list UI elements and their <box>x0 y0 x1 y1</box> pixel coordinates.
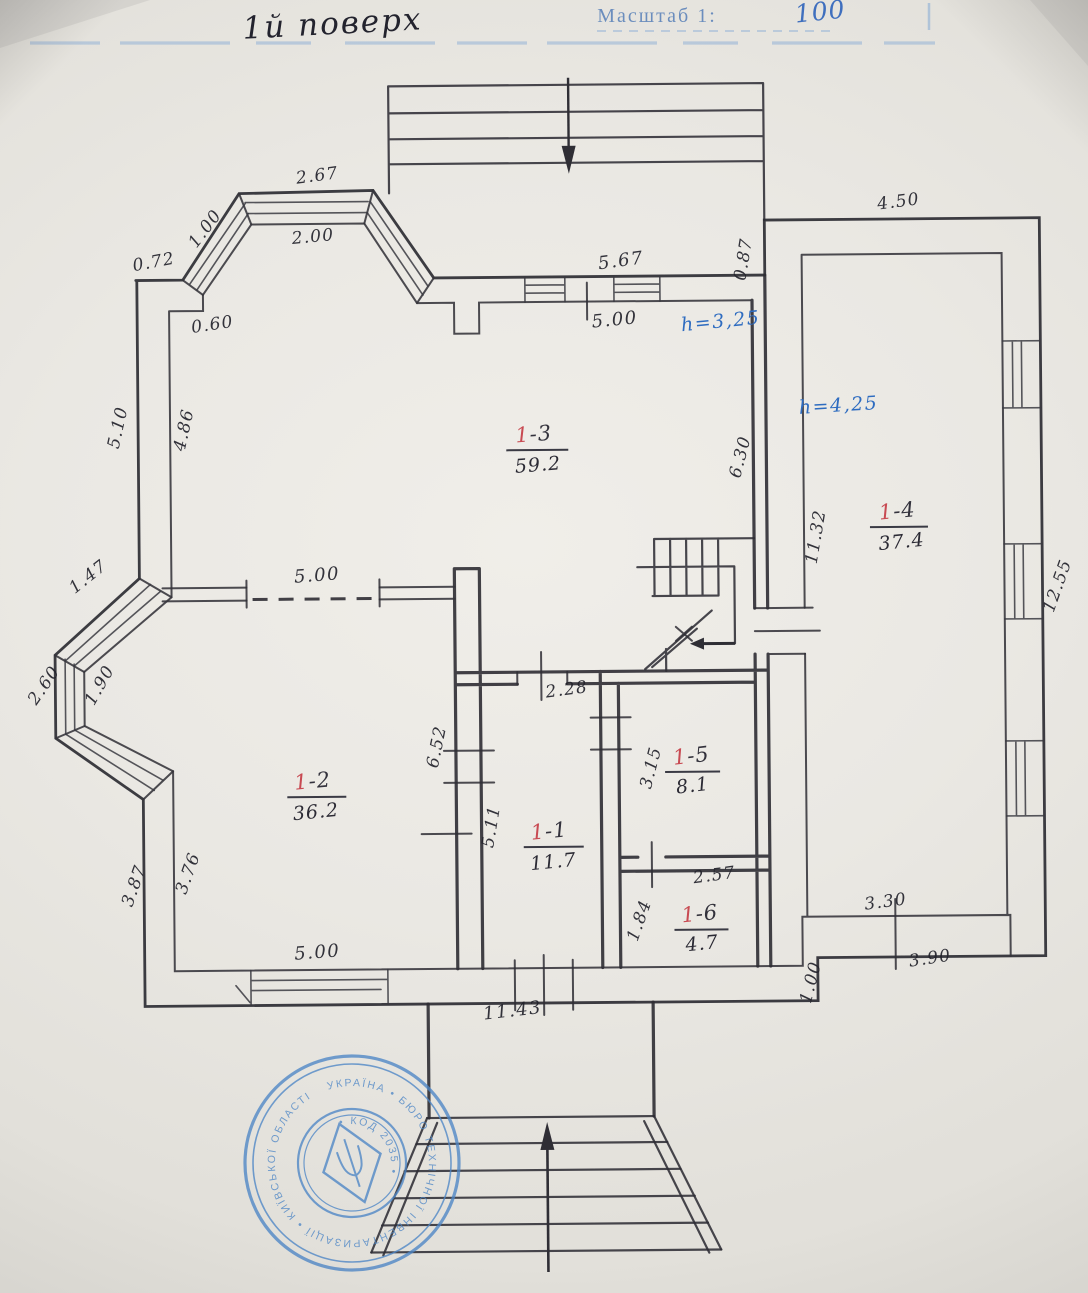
scan-corner-shadows <box>0 0 1088 66</box>
top-porch-stairs <box>388 76 764 223</box>
height-note-annex: h=4,25 <box>798 392 879 419</box>
room-1-2-suffix: -2 <box>307 767 332 793</box>
interior-staircase <box>637 538 755 671</box>
room-1-1-area: 11.7 <box>529 849 577 875</box>
floor-plan-canvas: 1й поверх Масштаб 1: 100 <box>0 0 1088 1293</box>
stamp-trident-icon <box>334 1136 370 1190</box>
room-labels: 1-3 59.2 1-2 36.2 1-1 11.7 1-5 8.1 1-6 <box>284 417 932 959</box>
dim-room1-top-opening: 2.28 <box>543 677 589 703</box>
stair-arrow-head <box>690 638 704 650</box>
room-1-1-suffix: -1 <box>544 817 569 843</box>
door-jambs-and-ticks <box>244 280 896 1018</box>
room-1-4-area: 37.4 <box>877 529 925 555</box>
dim-top-wall-outer: 5.67 <box>597 247 645 274</box>
up-arrow-head <box>540 1122 554 1150</box>
dim-bay-top-inner: 2.00 <box>290 225 335 249</box>
corner-shadow-topright <box>1030 0 1088 66</box>
dim-left-wall-inner: 4.86 <box>170 407 199 454</box>
dim-bay-top-outer: 2.67 <box>294 163 340 189</box>
dim-bay-left-window: 1.00 <box>184 206 226 252</box>
dim-bottom-window: 5.00 <box>293 940 341 965</box>
window-left-bay-bottom-diagonal <box>66 729 164 791</box>
room-label-1-1: 1-1 11.7 <box>523 817 583 875</box>
room-1-5-area: 8.1 <box>675 773 710 799</box>
dim-room2-left-outer: 3.87 <box>118 862 151 909</box>
dim-inner-step: 0.60 <box>190 312 235 338</box>
dim-left-bay-outer: 2.60 <box>23 662 64 709</box>
window-left-bay-side <box>65 659 75 734</box>
window-annex-right-3 <box>1006 741 1045 816</box>
dashed-opening <box>253 599 372 600</box>
room-label-1-2: 1-2 36.2 <box>287 767 346 825</box>
room-1-3-suffix: -3 <box>529 421 553 447</box>
dim-annex-top: 4.50 <box>875 189 921 215</box>
dim-room6-left: 1.84 <box>623 897 656 944</box>
room-1-4-suffix: -4 <box>892 497 917 523</box>
svg-text:1-3: 1-3 <box>514 421 553 448</box>
down-arrow-head <box>562 146 576 174</box>
dim-bottom-overall: 11.43 <box>482 997 543 1025</box>
room-label-1-5: 1-5 8.1 <box>665 742 720 799</box>
window-top-bay <box>245 202 368 214</box>
room-1-3-area: 59.2 <box>514 452 562 478</box>
scanned-floor-plan-page: 1й поверх Масштаб 1: 100 <box>0 0 1088 1293</box>
room-1-1-underline <box>524 847 584 848</box>
window-top-wall-1 <box>525 277 565 302</box>
svg-text:1-1: 1-1 <box>530 817 569 844</box>
room-1-6-suffix: -6 <box>695 900 720 926</box>
floor-title: 1й поверх <box>242 1 424 46</box>
window-annex-right-2 <box>1004 544 1043 619</box>
room-label-1-4: 1-4 37.4 <box>870 497 928 555</box>
dim-annex-left-wall: 11.32 <box>802 508 831 565</box>
height-annotations: h=3,25 h=4,25 <box>680 306 879 420</box>
dim-left-bay-top-window: 1.47 <box>65 556 111 598</box>
dim-annex-bottom-outer: 3.90 <box>907 946 952 972</box>
svg-text:1-4: 1-4 <box>878 497 917 524</box>
dim-hall-right-wall: 6.30 <box>726 434 756 480</box>
dim-top-left-step: 0.72 <box>131 249 177 276</box>
dim-room-opening: 5.00 <box>293 563 341 588</box>
floor-plan-drawing: 0.72 1.00 2.67 2.00 0.60 5.10 4.86 5.67 … <box>18 73 1083 1276</box>
title-block: 1й поверх Масштаб 1: 100 <box>30 0 935 47</box>
dimension-labels: 0.72 1.00 2.67 2.00 0.60 5.10 4.86 5.67 … <box>19 157 1081 1029</box>
dim-room2-left-inner: 3.76 <box>172 850 205 897</box>
dim-top-wall-inner: 5.00 <box>591 307 639 332</box>
room-label-1-3: 1-3 59.2 <box>506 421 568 478</box>
bay-corner-piers <box>51 190 438 800</box>
room-1-3-underline <box>506 450 568 451</box>
scale-value: 100 <box>793 0 846 29</box>
room-label-1-6: 1-6 4.7 <box>674 900 728 957</box>
room-1-2-area: 36.2 <box>292 799 340 825</box>
dim-annex-right-wall: 12.55 <box>1039 557 1076 615</box>
height-note-main: h=3,25 <box>680 307 761 337</box>
dim-room2-right-wall: 6.52 <box>423 724 451 770</box>
scale-label: Масштаб 1: <box>597 5 717 27</box>
room-1-4-underline <box>870 527 928 528</box>
room-1-2-underline <box>287 797 346 798</box>
interior-walls <box>160 274 897 1120</box>
dim-annex-bottom-inner: 3.30 <box>863 889 908 914</box>
window-bottom-wall <box>236 969 388 1005</box>
dim-room6-top: 2.57 <box>691 863 737 889</box>
room-1-5-suffix: -5 <box>686 742 711 768</box>
svg-text:1-5: 1-5 <box>672 742 711 770</box>
dim-room5-left-wall: 3.15 <box>636 745 666 791</box>
corner-shadow-topleft <box>0 0 150 48</box>
svg-text:1-2: 1-2 <box>293 767 332 794</box>
down-arrow-shaft <box>568 78 569 150</box>
official-stamp: УКРАЇНА • БЮРО ТЕХНІЧНОЇ ІНВЕНТАРИЗАЦІЇ … <box>217 1028 487 1293</box>
room-1-6-area: 4.7 <box>683 931 719 956</box>
window-top-bay-right-diagonal <box>367 201 428 296</box>
dim-left-wall-outer: 5.10 <box>104 405 133 451</box>
window-annex-right-1 <box>1002 341 1041 408</box>
up-arrow-shaft <box>547 1145 548 1272</box>
window-top-wall-2 <box>614 276 660 301</box>
exterior-walls <box>51 185 1046 1008</box>
svg-text:1-6: 1-6 <box>680 900 719 927</box>
